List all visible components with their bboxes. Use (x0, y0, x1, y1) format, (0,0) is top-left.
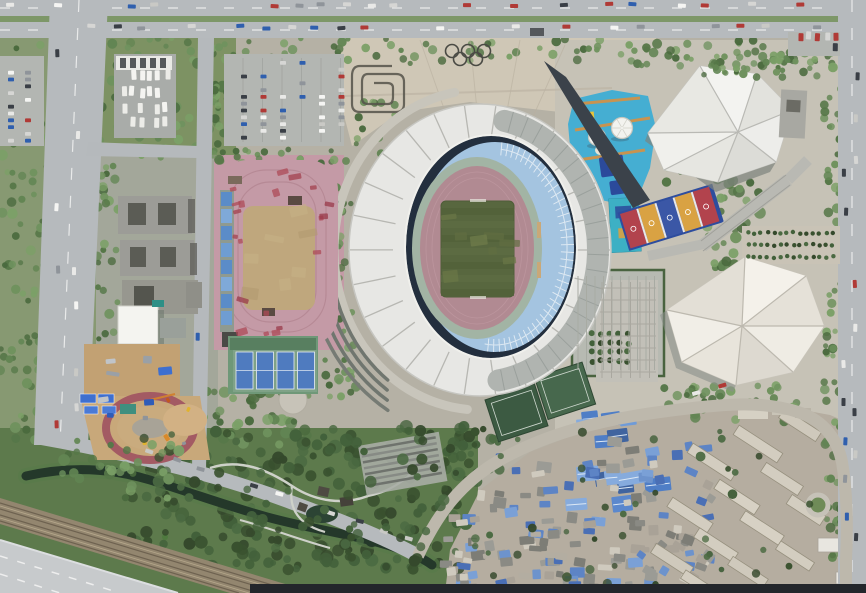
tree (472, 442, 478, 448)
tree (753, 73, 761, 81)
tree (337, 37, 346, 46)
tree (335, 368, 340, 373)
tree (799, 68, 808, 77)
tree (232, 438, 240, 446)
parked-car (339, 115, 345, 119)
parked-car (25, 118, 31, 122)
tree (714, 54, 720, 60)
tree (824, 171, 833, 180)
tree (824, 208, 834, 218)
tree (395, 495, 402, 502)
tree (168, 431, 175, 438)
village-roof (672, 450, 683, 460)
car (196, 333, 200, 341)
tree (95, 284, 101, 290)
tree (36, 41, 44, 49)
garden-shrub (746, 254, 750, 258)
car (74, 403, 79, 411)
bus (147, 71, 152, 81)
parking-lot-west (0, 56, 44, 146)
tree (729, 248, 739, 258)
tree (830, 353, 835, 358)
courtyard (130, 247, 146, 267)
car (841, 398, 845, 406)
tree (828, 123, 835, 130)
tree (30, 169, 38, 177)
tree (140, 526, 152, 538)
garden-shrub (804, 232, 808, 236)
village-roof (468, 570, 478, 579)
tree (6, 355, 14, 363)
tree (347, 389, 354, 396)
garden-shrub (765, 243, 769, 247)
parked-car (280, 109, 286, 113)
tree (113, 247, 120, 254)
car (605, 2, 613, 6)
bench (537, 262, 541, 278)
tree (820, 385, 830, 395)
canopy-slot (150, 58, 156, 68)
garden-shrub (812, 255, 816, 259)
garden-shrub (811, 242, 815, 246)
tree (108, 442, 114, 448)
tree (701, 72, 707, 78)
tree (396, 425, 404, 433)
dirt-pile (163, 404, 207, 436)
tree (262, 414, 273, 425)
village-roof (610, 485, 619, 492)
tree (107, 39, 117, 49)
garden-shrub (766, 230, 770, 234)
village-roof (540, 544, 547, 551)
tree (110, 175, 119, 184)
tree (453, 470, 459, 476)
car (137, 26, 145, 30)
tree (428, 45, 437, 54)
village-roof (564, 481, 574, 491)
building-shadow (190, 243, 197, 275)
tree (752, 569, 760, 577)
parked-car (25, 71, 31, 75)
parked-car (261, 115, 267, 119)
tree (711, 259, 719, 267)
tree (256, 469, 265, 478)
bus (147, 86, 152, 96)
tree (185, 516, 195, 526)
tree (760, 547, 766, 553)
tree (96, 260, 102, 266)
tree (173, 445, 184, 456)
tree (432, 541, 443, 552)
tree (733, 65, 740, 72)
tree (185, 114, 193, 122)
tree (226, 456, 232, 462)
tree (323, 468, 332, 477)
tree (9, 170, 15, 176)
car (389, 3, 397, 7)
car (87, 24, 95, 28)
tree (407, 488, 420, 501)
site-office-roof (120, 404, 136, 414)
tree (327, 394, 333, 400)
tree (20, 290, 26, 296)
tree (360, 448, 368, 456)
garden-shrub (823, 243, 827, 247)
tree (127, 481, 137, 491)
parked-car (319, 102, 325, 106)
tree (256, 447, 266, 457)
car (236, 24, 244, 28)
tree (110, 163, 117, 170)
tree (660, 384, 668, 392)
tree (232, 523, 243, 534)
village-roof (512, 467, 521, 474)
tree (721, 53, 728, 60)
tree (319, 553, 332, 566)
bus (155, 88, 161, 98)
tree (382, 563, 390, 571)
tree (744, 50, 752, 58)
car (815, 33, 821, 41)
tree (246, 39, 251, 44)
tree (127, 466, 135, 474)
tree (229, 394, 237, 402)
pitch-patch (442, 270, 458, 283)
infield-patch (244, 253, 259, 263)
tree (279, 455, 288, 464)
car (853, 450, 858, 458)
tree (170, 498, 178, 506)
tree (219, 533, 228, 542)
tree (397, 453, 409, 465)
tree (578, 428, 587, 437)
stand-roof (221, 260, 232, 274)
tree (831, 379, 837, 385)
tree (400, 521, 410, 531)
tree (703, 41, 712, 50)
village-roof (446, 567, 456, 576)
tree (98, 182, 107, 191)
parked-car (300, 61, 306, 65)
tree (96, 462, 104, 470)
garden-shrub (785, 254, 789, 258)
tree (24, 334, 30, 340)
tree (166, 441, 175, 450)
tree (164, 494, 171, 501)
tree (574, 48, 580, 54)
tree (732, 469, 739, 476)
tree (110, 328, 118, 336)
tree (717, 393, 724, 400)
top-road-median (0, 16, 866, 22)
car (853, 324, 857, 332)
tree (278, 150, 285, 157)
tree (471, 427, 480, 436)
garden-shrub (831, 231, 835, 235)
tree (22, 426, 30, 434)
village-roof (648, 525, 658, 536)
village-roof (597, 460, 607, 466)
car (761, 24, 769, 28)
tree (806, 501, 813, 508)
tree (223, 515, 229, 521)
tree (562, 572, 572, 582)
village-roof (596, 479, 607, 490)
tree (108, 257, 116, 265)
car (72, 267, 76, 275)
tree (827, 299, 836, 308)
parking-lot-northeast (788, 32, 840, 56)
car (74, 301, 78, 309)
bus (155, 70, 160, 80)
village-roof (544, 571, 554, 579)
tree (756, 453, 763, 460)
car (368, 4, 376, 8)
tree (290, 429, 302, 441)
garden-shrub (817, 255, 821, 259)
track-patch (313, 250, 322, 255)
tree (736, 185, 744, 193)
garden-shrub (791, 230, 795, 234)
parked-car (280, 115, 286, 119)
car (510, 4, 518, 8)
garden-shrub (818, 243, 822, 247)
tree (123, 446, 131, 454)
car (843, 437, 847, 445)
tree (18, 172, 26, 180)
tree (283, 564, 294, 575)
tree (631, 48, 637, 54)
tree (361, 44, 370, 53)
village-roof (566, 512, 578, 524)
tree (155, 485, 166, 496)
garden-shrub (792, 255, 796, 259)
tree (537, 45, 543, 51)
village-roof (456, 519, 468, 527)
garden-shrub (824, 256, 828, 260)
garden-shrub (758, 231, 762, 235)
parked-car (261, 95, 267, 99)
garden-shrub (792, 243, 796, 247)
tree (305, 470, 316, 481)
tree (832, 329, 837, 334)
parked-car (8, 125, 14, 129)
tree (721, 240, 727, 246)
upper-roof-rib (588, 254, 609, 255)
tree (211, 389, 218, 396)
car (806, 31, 811, 39)
tree (486, 550, 491, 555)
tree (31, 332, 38, 339)
village-roof (518, 572, 530, 579)
tree (243, 433, 253, 443)
garden-shrub (747, 242, 751, 246)
tree (18, 339, 24, 345)
tree (242, 147, 248, 153)
car (855, 72, 859, 80)
tree (243, 486, 251, 494)
garden-shrub (778, 231, 782, 235)
tree (184, 39, 192, 47)
car (54, 203, 59, 211)
tree (8, 346, 16, 354)
parked-car (339, 75, 345, 79)
tree (160, 508, 171, 519)
tree (215, 102, 222, 109)
tree (458, 421, 469, 432)
tree (253, 521, 264, 532)
village-roof (470, 516, 480, 523)
aerial-scene (0, 0, 866, 593)
car (843, 475, 848, 483)
courtyard (134, 286, 154, 306)
tree (387, 41, 395, 49)
parked-car (319, 115, 325, 119)
car (841, 360, 845, 368)
village-roof (484, 540, 495, 552)
parked-car (25, 132, 31, 136)
car (610, 26, 618, 30)
tree (625, 41, 633, 49)
tree (586, 565, 595, 574)
tree (385, 507, 396, 518)
village-roof (623, 499, 631, 506)
village-roof (460, 574, 468, 581)
tree (359, 125, 366, 132)
garden-shrub (811, 231, 815, 235)
tree (231, 542, 242, 553)
car (798, 33, 803, 41)
tree (396, 533, 405, 542)
tennis-north-strip (230, 338, 316, 350)
tree (233, 559, 241, 567)
tree (643, 61, 650, 68)
tree (573, 56, 582, 65)
tree (832, 288, 838, 294)
annex (186, 282, 202, 308)
tree (774, 384, 782, 392)
tree (438, 56, 446, 64)
tree (689, 57, 694, 62)
village-roof (520, 493, 531, 498)
site-office-roof (102, 406, 116, 414)
parking-tree (589, 340, 595, 346)
tree (719, 65, 725, 71)
annex (160, 318, 186, 338)
tree (102, 199, 110, 207)
garden-shrub (784, 242, 788, 246)
tree (823, 343, 828, 348)
garden-shrub (784, 231, 788, 235)
tree (548, 50, 557, 59)
tree (666, 46, 675, 55)
tree (702, 535, 709, 542)
parked-car (280, 129, 286, 133)
tree (620, 511, 627, 518)
car (842, 169, 846, 177)
tree (320, 434, 327, 441)
parked-car (261, 129, 267, 133)
car (6, 3, 14, 7)
car (54, 3, 62, 8)
tree (343, 490, 353, 500)
tree (220, 149, 226, 155)
tree (104, 309, 114, 319)
bench (537, 222, 541, 238)
tree (430, 464, 439, 473)
construction-item (105, 358, 115, 364)
tree (14, 45, 20, 51)
tree (751, 60, 758, 67)
tree (780, 68, 786, 74)
tree (302, 438, 311, 447)
tree (639, 63, 644, 68)
village-roof (541, 518, 554, 524)
garden-shrub (753, 242, 757, 246)
tree (337, 392, 345, 400)
tree (11, 285, 20, 294)
tree (31, 287, 39, 295)
tree (284, 487, 291, 494)
tree (285, 147, 291, 153)
tree (813, 72, 820, 79)
garden-shrub (772, 256, 776, 260)
tree (262, 500, 270, 508)
goal-area (470, 296, 486, 299)
parked-car (261, 122, 267, 126)
tree (472, 543, 478, 549)
construction-item (144, 399, 154, 406)
tree (807, 66, 812, 71)
tree (322, 357, 327, 362)
tree (372, 52, 380, 60)
tree (102, 330, 109, 337)
tree (234, 419, 244, 429)
tree (416, 454, 427, 465)
site-office-roof (84, 406, 98, 414)
pitch-patch (503, 257, 517, 265)
tree (652, 39, 662, 49)
tree (513, 551, 521, 559)
tree (578, 465, 586, 473)
tree (291, 418, 297, 424)
tree (58, 454, 70, 466)
tree (356, 537, 364, 545)
stand-roof (221, 311, 232, 325)
village-roof (443, 536, 453, 542)
tree (512, 48, 520, 56)
tree (189, 476, 201, 488)
tree (312, 439, 323, 450)
car (844, 208, 848, 216)
tree (704, 553, 711, 560)
tree (696, 452, 706, 462)
tree (26, 339, 33, 346)
tree (751, 48, 759, 56)
tree (223, 429, 231, 437)
tree (134, 458, 142, 466)
car (736, 24, 744, 28)
car (512, 24, 520, 28)
tree (2, 262, 8, 268)
mow-stripe (441, 248, 514, 255)
canopy-slot (120, 58, 126, 68)
tree (662, 177, 671, 186)
car (317, 2, 325, 6)
building-shadow (188, 199, 195, 233)
parked-car (8, 139, 14, 143)
tree (786, 563, 793, 570)
